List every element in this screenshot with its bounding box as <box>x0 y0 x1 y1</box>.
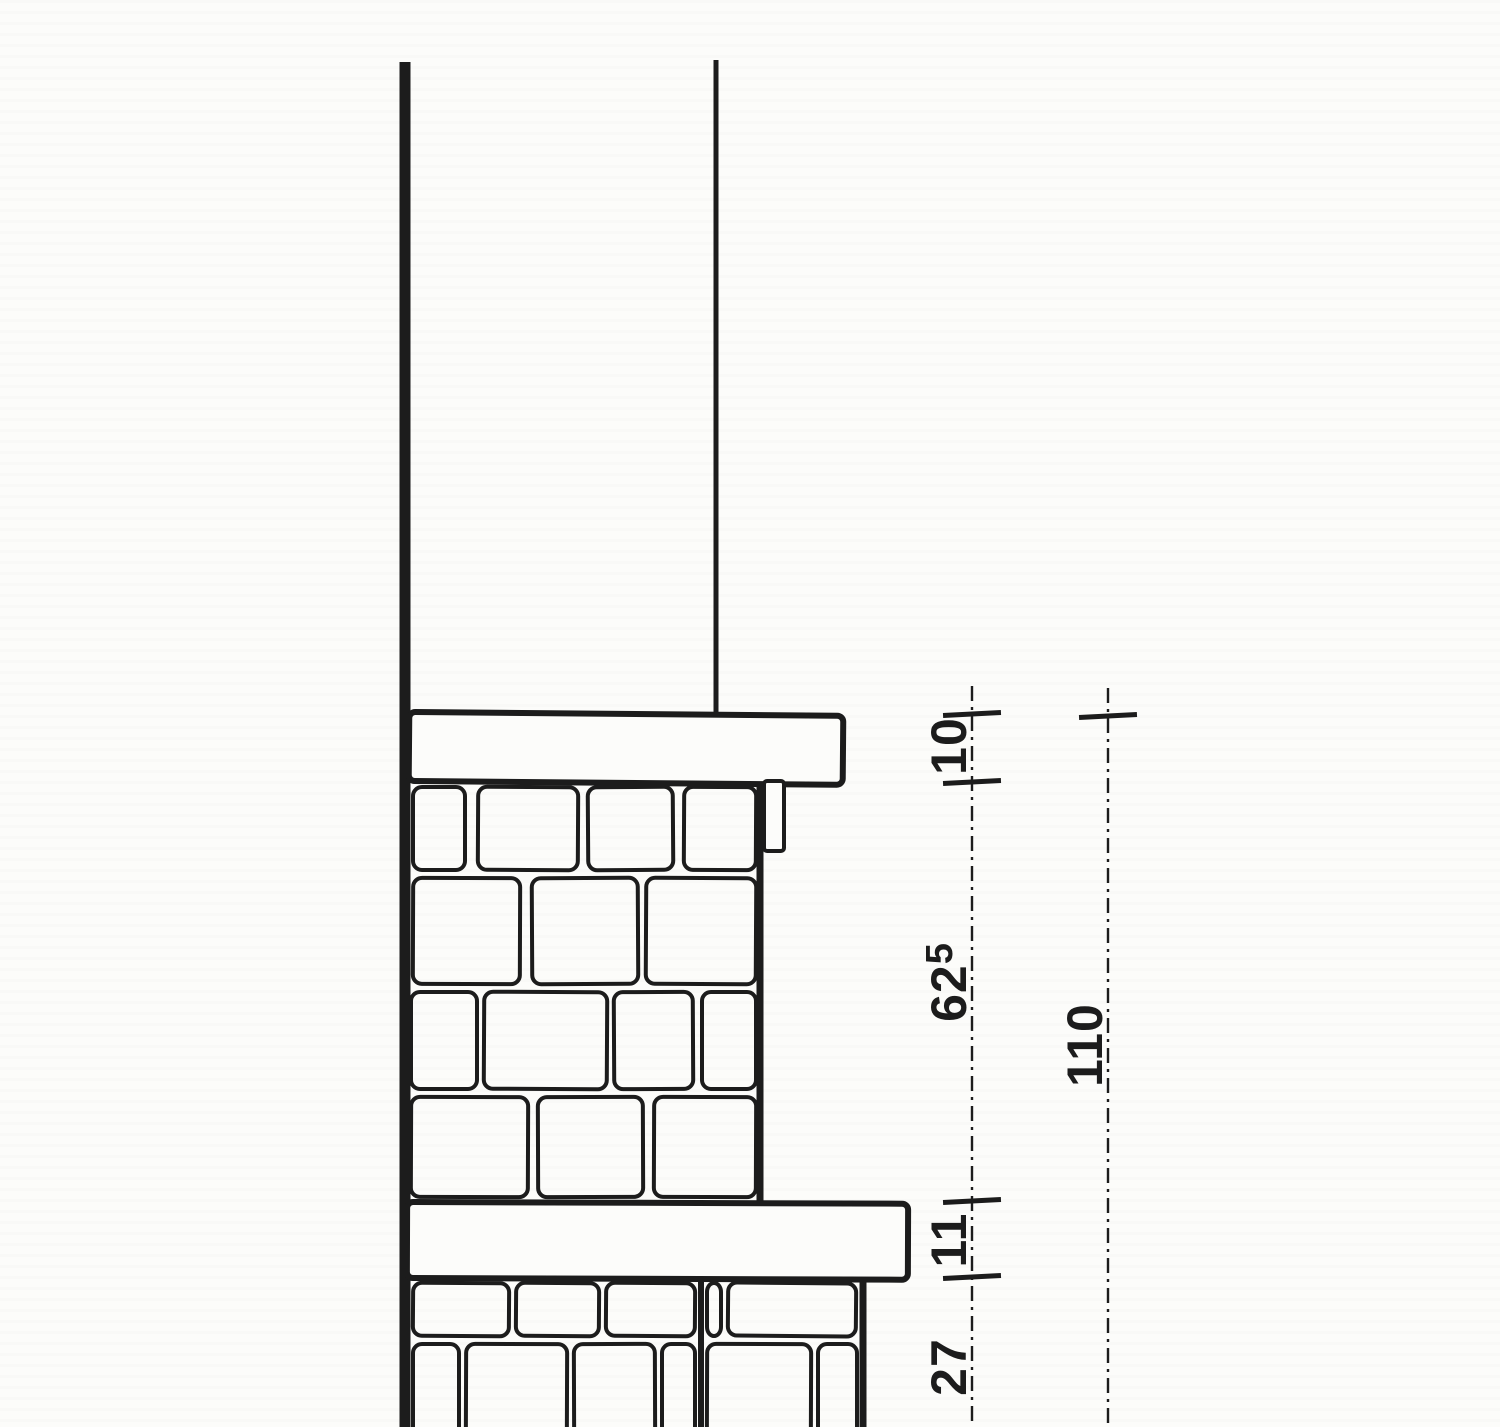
dimension-label: 11 <box>921 1213 977 1268</box>
masonry-stone <box>728 1282 856 1336</box>
masonry-stone <box>606 1283 695 1337</box>
masonry-stone <box>413 1344 459 1427</box>
masonry-stone <box>484 992 608 1090</box>
masonry-stone <box>588 787 674 871</box>
masonry-stone <box>532 878 639 985</box>
masonry-stone <box>466 1344 567 1427</box>
masonry-stone <box>478 787 578 871</box>
masonry-stone <box>516 1283 599 1337</box>
masonry-stone <box>818 1344 857 1427</box>
string-course-slab <box>407 1202 908 1280</box>
masonry-stone <box>411 992 477 1089</box>
masonry-stone <box>702 992 756 1089</box>
dimension-tick <box>943 1199 1001 1202</box>
masonry-stone <box>413 787 465 870</box>
dimension-label: 625 <box>919 942 977 1022</box>
masonry-stone <box>413 1283 509 1337</box>
masonry-stone <box>654 1097 756 1197</box>
masonry-stone <box>538 1097 643 1197</box>
masonry-stone <box>574 1344 655 1427</box>
masonry-stone <box>646 878 757 985</box>
wall-section-drawing: 106251127110 <box>0 0 1500 1427</box>
coping-slab <box>409 712 844 785</box>
dimension-label: 27 <box>921 1338 977 1396</box>
masonry-stone <box>411 1097 528 1197</box>
dimension-tick <box>943 780 1001 783</box>
masonry-stone <box>614 992 694 1089</box>
dimension-label: 10 <box>921 717 977 775</box>
dimension-tick <box>1079 714 1137 717</box>
drip-fillet <box>764 781 784 851</box>
dimension-label: 110 <box>1057 1003 1113 1087</box>
masonry-stone <box>413 878 520 984</box>
drawing-page: 106251127110 <box>0 0 1500 1427</box>
dimension-tick <box>943 1275 1001 1278</box>
dimension-tick <box>943 712 1001 715</box>
masonry-stone <box>662 1344 695 1427</box>
masonry-stone <box>707 1344 811 1427</box>
masonry-stone <box>684 787 756 870</box>
masonry-stone <box>707 1283 721 1336</box>
